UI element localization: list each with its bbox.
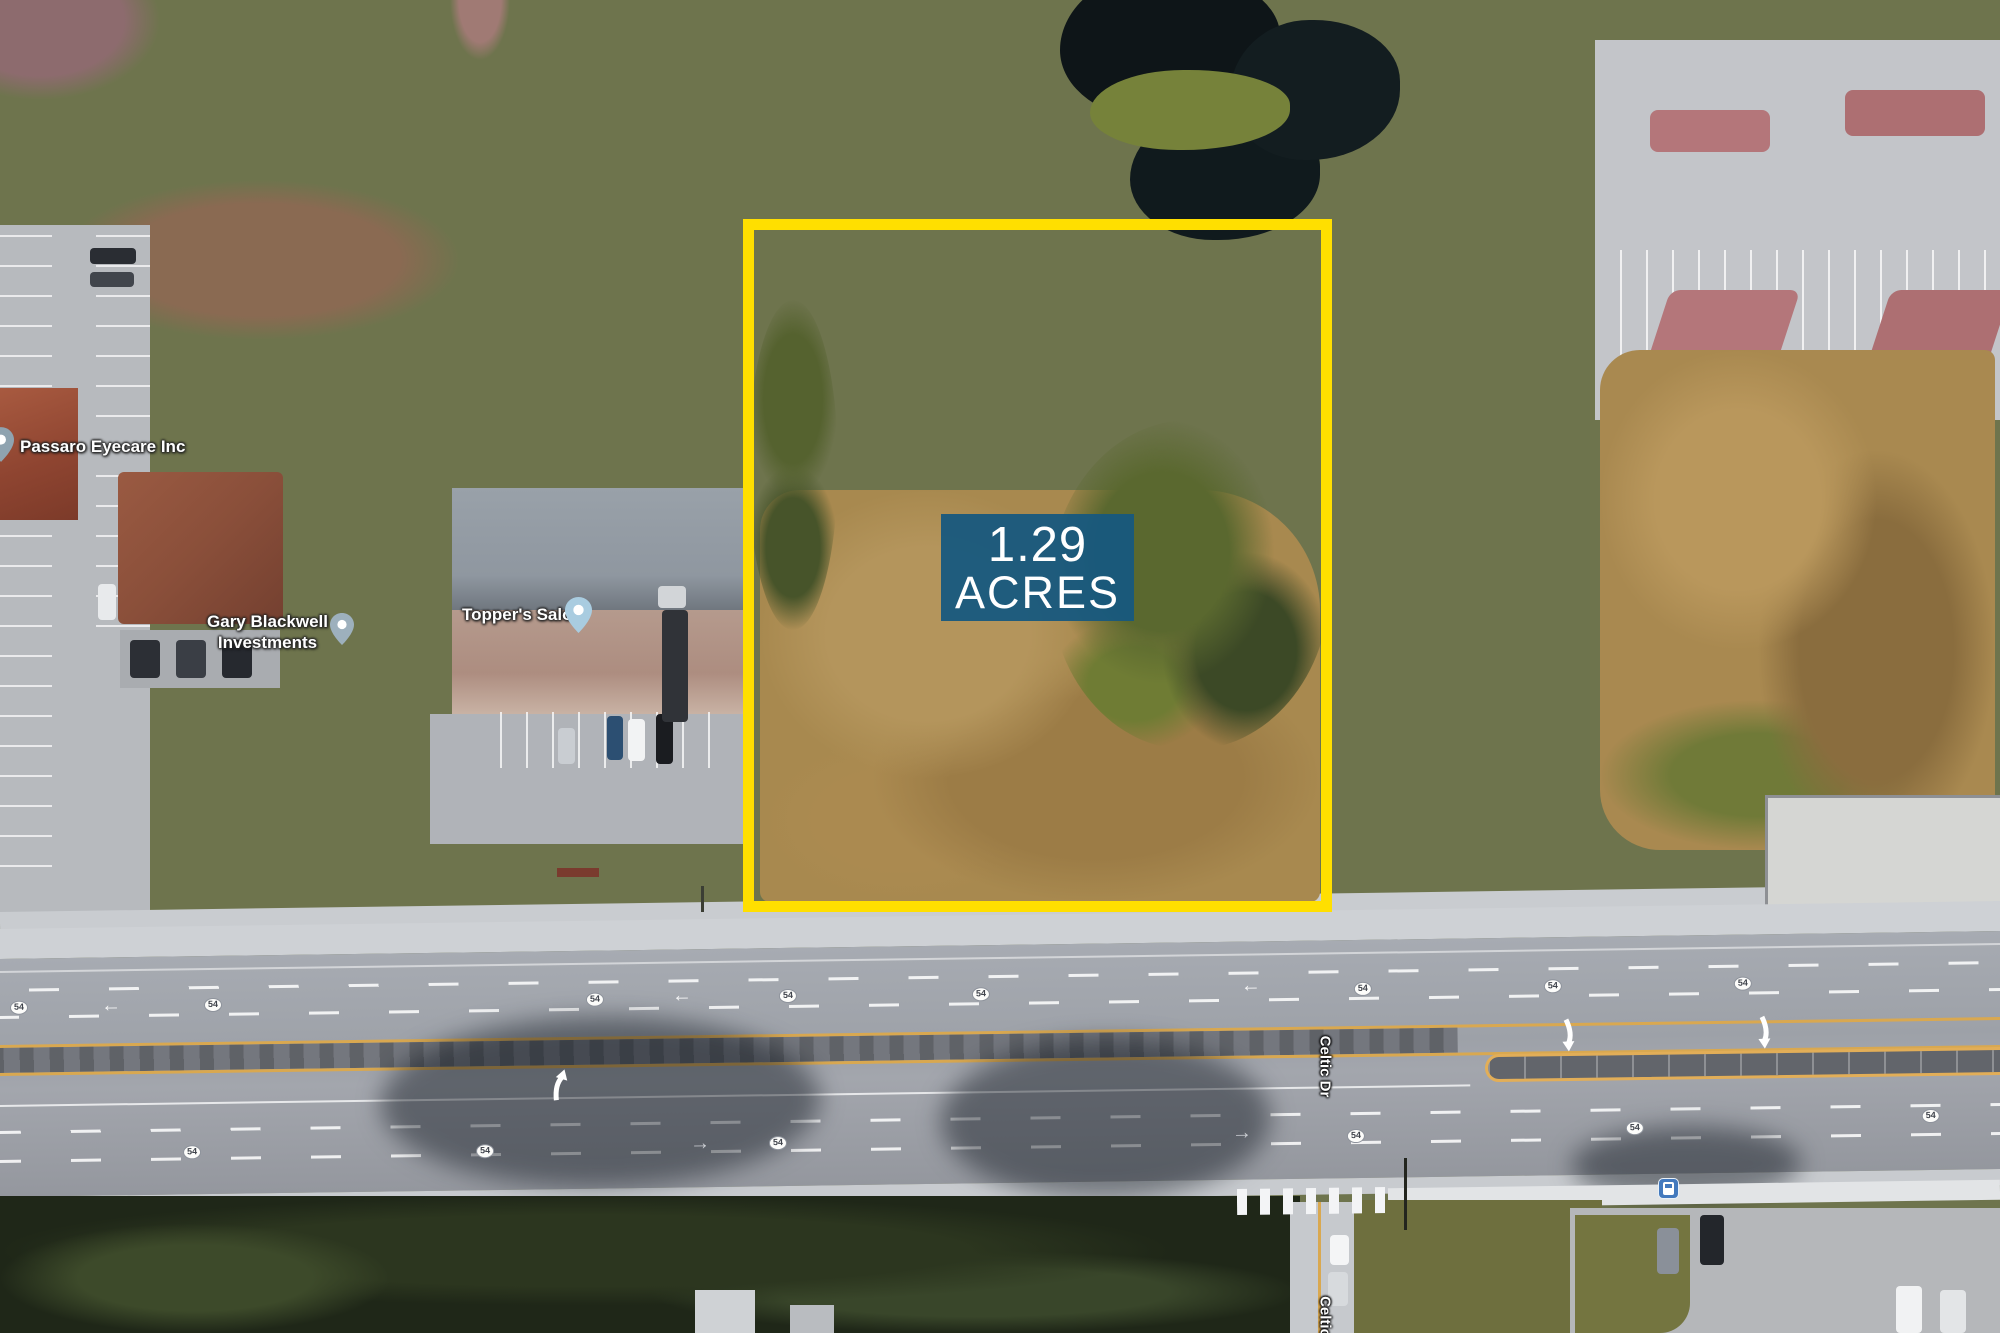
building-toppers-roof-south bbox=[452, 610, 747, 715]
parked-car bbox=[1700, 1215, 1724, 1265]
parked-van bbox=[1940, 1290, 1966, 1333]
street-label-celtic-partial: Celtic bbox=[1317, 1277, 1334, 1333]
parked-car bbox=[90, 248, 136, 264]
building-gary-blackwell bbox=[118, 472, 283, 624]
lane-arrow-left-marking: ← bbox=[1241, 975, 1261, 995]
crosswalk bbox=[1237, 1187, 1387, 1215]
poi-label-gary: Gary Blackwell Investments bbox=[205, 611, 330, 653]
truck-cab bbox=[658, 586, 686, 608]
dirt-field-east bbox=[1600, 350, 1995, 850]
aerial-map-image: 54 54 54 54 54 54 54 54 54 54 54 54 54 5… bbox=[0, 0, 2000, 1333]
utility-pole bbox=[1404, 1158, 1407, 1230]
trees-south bbox=[0, 1196, 1300, 1333]
acreage-unit: ACRES bbox=[955, 570, 1120, 616]
lane-arrow-right-marking: → bbox=[1232, 1122, 1252, 1142]
truck-trailer bbox=[662, 610, 688, 722]
parked-car bbox=[130, 640, 160, 678]
parked-car bbox=[176, 640, 206, 678]
parked-car bbox=[1657, 1228, 1679, 1274]
building-toppers-roof-north bbox=[452, 488, 747, 613]
lane-arrow-right-marking: → bbox=[690, 1133, 710, 1153]
parked-car bbox=[558, 728, 575, 764]
acreage-value: 1.29 bbox=[988, 520, 1087, 570]
map-pin-icon bbox=[565, 597, 592, 633]
grass-southeast bbox=[1352, 1200, 1602, 1333]
parked-car bbox=[98, 584, 116, 620]
parked-van bbox=[1896, 1286, 1922, 1333]
concrete-pad bbox=[1765, 795, 2000, 910]
acreage-badge: 1.29 ACRES bbox=[941, 514, 1134, 621]
landscape-island bbox=[1845, 90, 1985, 136]
street-label-celtic-dr: Celtic Dr bbox=[1317, 1027, 1334, 1107]
poi-label-gary-line2: Investments bbox=[205, 632, 330, 653]
bus-stop-icon bbox=[1658, 1178, 1679, 1199]
map-pin-icon bbox=[330, 613, 354, 645]
car-on-celtic bbox=[1330, 1235, 1349, 1265]
bus-glyph-window bbox=[1665, 1184, 1672, 1188]
sign-post bbox=[701, 886, 704, 912]
poi-label-gary-line1: Gary Blackwell bbox=[205, 611, 330, 632]
lane-arrow-left-marking: ← bbox=[672, 985, 692, 1005]
parked-car bbox=[628, 719, 645, 761]
landscape-island bbox=[1650, 110, 1770, 152]
lane-arrow-left-marking: ← bbox=[101, 995, 121, 1015]
poi-label-passaro: Passaro Eyecare Inc bbox=[20, 436, 185, 457]
building-roof-south bbox=[790, 1305, 834, 1333]
parked-car bbox=[607, 716, 623, 760]
building-roof-south bbox=[695, 1290, 755, 1333]
turn-arrow-marking bbox=[548, 1069, 572, 1101]
bench bbox=[557, 868, 599, 877]
map-pin-icon bbox=[0, 427, 14, 462]
parking-stalls bbox=[0, 235, 52, 895]
parked-car bbox=[90, 272, 134, 287]
